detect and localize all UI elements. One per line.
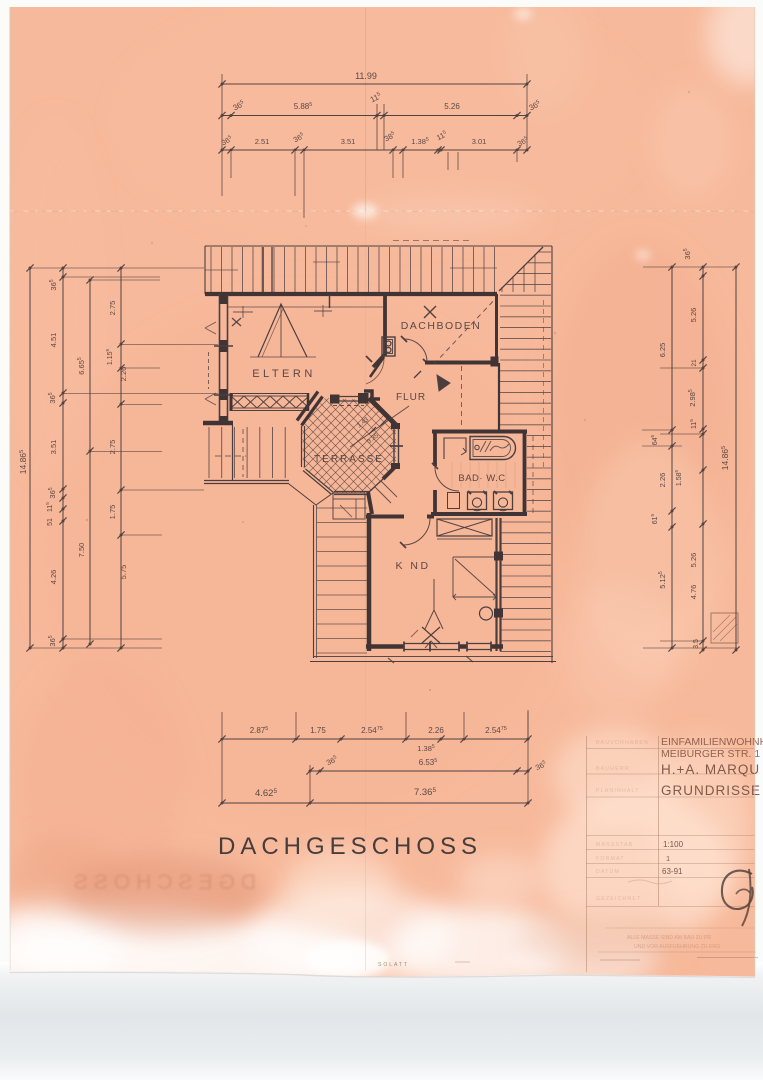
svg-text:11.99: 11.99 [355,71,377,81]
svg-text:BAUVORHABEN: BAUVORHABEN [596,740,649,746]
svg-text:5.75: 5.75 [119,565,128,580]
svg-text:3.51: 3.51 [341,137,356,146]
svg-text:3.5: 3.5 [693,639,700,649]
svg-text:2.75: 2.75 [108,301,117,316]
svg-text:1.75: 1.75 [310,726,326,735]
svg-text:DGESCHOSS: DGESCHOSS [68,871,256,894]
svg-text:2.26: 2.26 [119,367,128,382]
svg-text:2.51: 2.51 [255,137,270,146]
svg-text:14.865: 14.865 [18,450,28,475]
svg-text:3.01: 3.01 [472,137,487,146]
svg-text:BAD· W.C: BAD· W.C [458,473,505,484]
svg-text:5.26: 5.26 [689,308,698,323]
svg-text:2.26: 2.26 [658,473,667,488]
svg-text:TERRASSE: TERRASSE [314,454,384,465]
svg-text:GRUNDRISSE: GRUNDRISSE [661,783,761,798]
svg-text:EINFAMILIENWOHNH: EINFAMILIENWOHNH [661,736,763,748]
svg-text:4.51: 4.51 [49,333,58,348]
svg-text:5.26: 5.26 [444,102,460,111]
svg-text:2.75: 2.75 [108,440,117,455]
svg-text:14.865: 14.865 [720,446,730,471]
svg-text:1:100: 1:100 [663,840,684,849]
svg-text:DACHBODEN: DACHBODEN [401,320,482,332]
svg-text:21: 21 [691,359,698,367]
svg-text:MEIBURGER STR. 1: MEIBURGER STR. 1 [661,748,760,760]
svg-text:4.26: 4.26 [49,570,58,585]
svg-text:ALLE MASSE SIND AM BAU ZU PR: ALLE MASSE SIND AM BAU ZU PR [627,935,711,941]
svg-text:UND VOR AUSFUEHRUNG ZU ERG: UND VOR AUSFUEHRUNG ZU ERG [634,944,720,950]
svg-text:3.51: 3.51 [49,440,58,455]
svg-text:FLUR: FLUR [396,392,426,403]
svg-text:ELTERN: ELTERN [252,368,316,380]
svg-text:6.25: 6.25 [658,343,667,358]
svg-text:1: 1 [666,854,670,863]
svg-text:1.75: 1.75 [108,505,117,520]
svg-text:DACHGESCHOSS: DACHGESCHOSS [218,833,482,860]
svg-text:SOLATT: SOLATT [378,962,409,968]
svg-text:MASSSTAB: MASSSTAB [596,842,633,848]
svg-text:5.26: 5.26 [689,553,698,568]
svg-text:DATUM: DATUM [596,869,620,875]
svg-text:H.+A. MARQU: H.+A. MARQU [661,762,760,777]
svg-text:63-91: 63-91 [662,867,683,876]
svg-text:FORMAT: FORMAT [596,856,625,862]
svg-text:7.50: 7.50 [77,543,86,558]
svg-text:K ND: K ND [395,560,430,572]
svg-text:PLANINHALT: PLANINHALT [596,788,640,794]
svg-text:BAUHERR: BAUHERR [596,766,630,772]
svg-text:2.26: 2.26 [428,726,444,735]
svg-text:51: 51 [47,518,54,526]
svg-text:GEZEICHNET: GEZEICHNET [596,896,641,902]
svg-text:4.76: 4.76 [689,585,698,600]
